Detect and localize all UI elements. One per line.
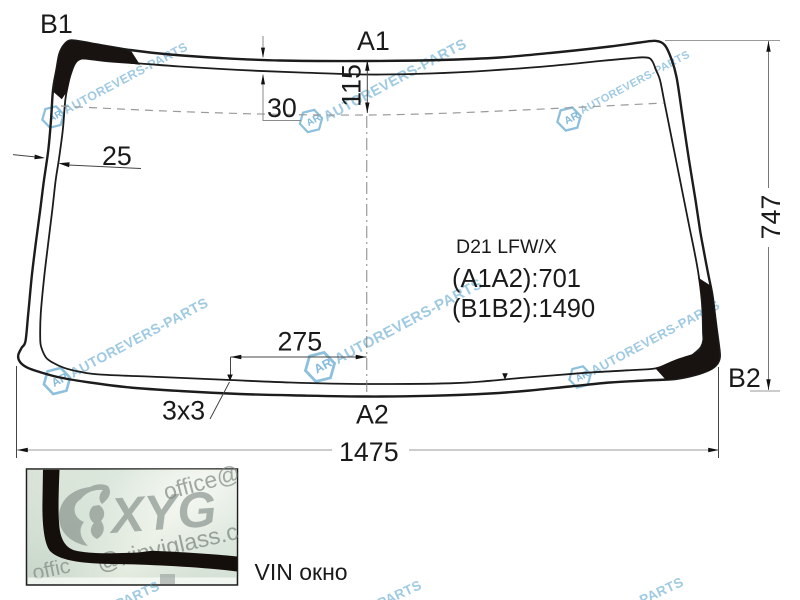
svg-text:(A1A2):701: (A1A2):701 — [452, 265, 581, 293]
svg-text:B2: B2 — [728, 363, 761, 393]
svg-text:115: 115 — [337, 64, 367, 107]
svg-text:VIN окно: VIN окно — [255, 559, 348, 585]
svg-text:(B1B2):1490: (B1B2):1490 — [452, 295, 595, 323]
svg-text:D21 LFW/X: D21 LFW/X — [456, 236, 557, 258]
svg-text:747: 747 — [756, 195, 786, 240]
svg-text:B1: B1 — [40, 9, 73, 39]
svg-text:A1: A1 — [357, 26, 390, 56]
svg-text:25: 25 — [102, 141, 132, 171]
svg-text:3x3: 3x3 — [162, 396, 205, 426]
svg-text:A2: A2 — [356, 400, 389, 430]
svg-text:275: 275 — [278, 327, 323, 357]
svg-text:1475: 1475 — [339, 437, 399, 467]
svg-text:30: 30 — [267, 93, 297, 123]
